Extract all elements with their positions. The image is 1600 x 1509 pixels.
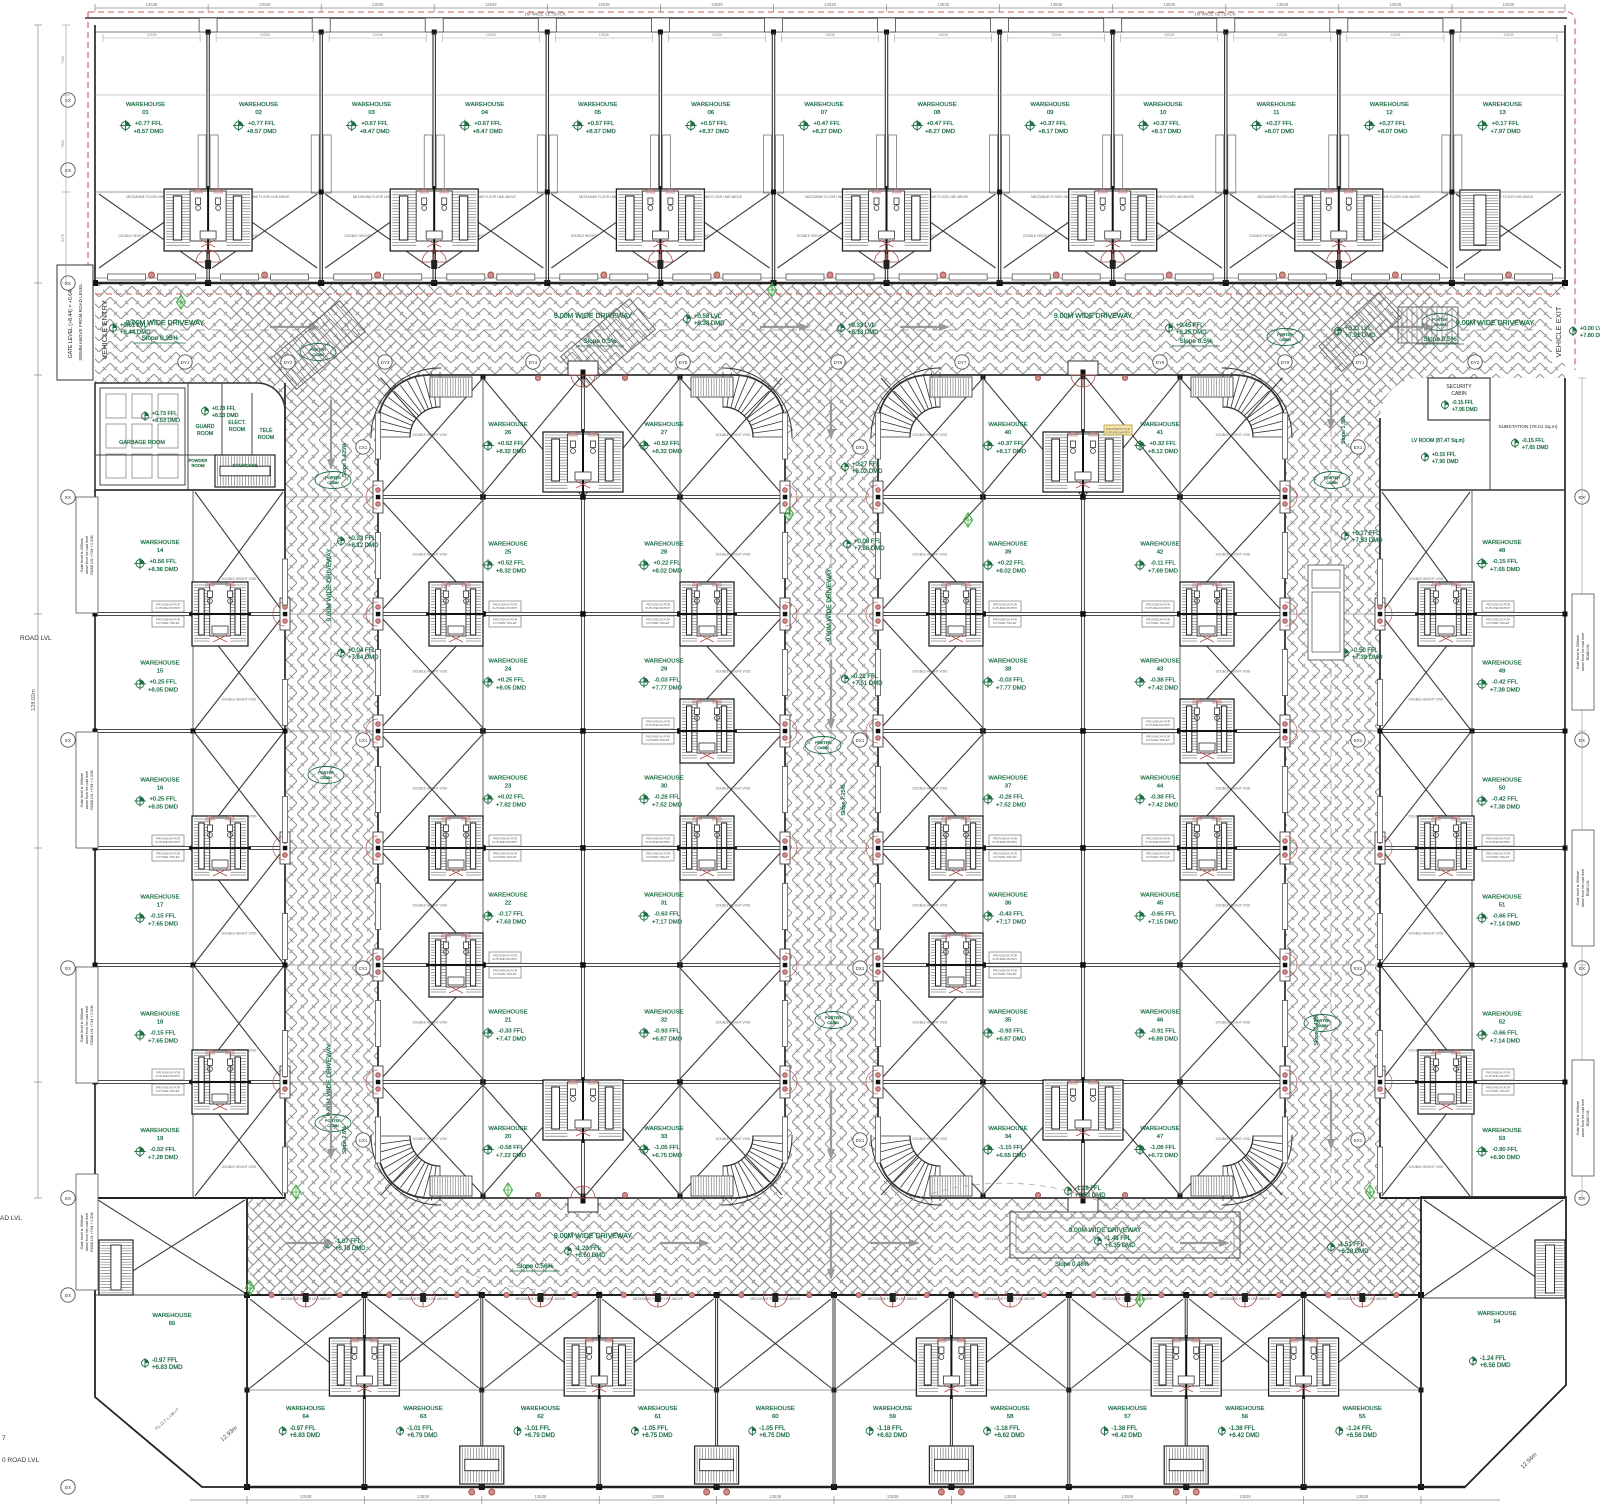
svg-text:-1.18 FFL: -1.18 FFL (877, 1426, 904, 1432)
svg-text:+0.47 FFL: +0.47 FFL (927, 121, 955, 127)
svg-text:WAREHOUSE: WAREHOUSE (1140, 542, 1179, 548)
svg-text:+8.47 DMD: +8.47 DMD (360, 129, 390, 135)
svg-text:+8.05 DMD: +8.05 DMD (148, 805, 178, 811)
svg-text:DY1: DY1 (1356, 360, 1365, 365)
svg-text:FUTURE PANTRY: FUTURE PANTRY (646, 606, 671, 610)
svg-text:31: 31 (661, 901, 668, 907)
svg-text:13538: 13538 (1004, 1494, 1016, 1499)
svg-text:+0.08 FFL: +0.08 FFL (854, 539, 882, 545)
svg-text:DOUBLE HEIGHT: DOUBLE HEIGHT (571, 234, 597, 238)
svg-text:26: 26 (505, 430, 512, 436)
svg-text:19: 19 (157, 1136, 164, 1142)
svg-text:56: 56 (1242, 1414, 1249, 1420)
svg-text:Gate level is 300mm: Gate level is 300mm (80, 773, 84, 808)
svg-text:30: 30 (661, 784, 668, 790)
svg-text:WAREHOUSE: WAREHOUSE (1482, 778, 1521, 784)
svg-text:+0.25 FFL: +0.25 FFL (149, 797, 177, 803)
svg-text:WAREHOUSE: WAREHOUSE (1482, 1012, 1521, 1018)
svg-text:WAREHOUSE: WAREHOUSE (988, 776, 1027, 782)
svg-text:-0.93 FFL: -0.93 FFL (654, 1029, 680, 1035)
svg-text:LV ROOM (87.47 Sq.m): LV ROOM (87.47 Sq.m) (1412, 438, 1465, 444)
svg-text:WAREHOUSE: WAREHOUSE (1140, 1126, 1179, 1132)
svg-text:10538: 10538 (1164, 33, 1174, 37)
svg-text:-0.03 FFL: -0.03 FFL (998, 678, 1024, 684)
svg-text:VEHICLE EXIT: VEHICLE EXIT (1554, 306, 1563, 357)
svg-text:-0.58 FFL: -0.58 FFL (498, 1145, 524, 1151)
svg-text:03: 03 (368, 110, 375, 116)
svg-text:22: 22 (505, 901, 512, 907)
svg-text:39: 39 (1005, 550, 1012, 556)
svg-text:WAREHOUSE: WAREHOUSE (644, 893, 683, 899)
svg-text:ROAD LVL +7.64 + 0.30M: ROAD LVL +7.64 + 0.30M (90, 1212, 94, 1251)
svg-text:DY7: DY7 (958, 360, 967, 365)
svg-text:-0.03 FFL: -0.03 FFL (654, 678, 680, 684)
svg-text:FUTURE TOILET: FUTURE TOILET (646, 621, 670, 625)
svg-text:WAREHOUSE: WAREHOUSE (873, 1406, 912, 1412)
svg-text:+7.82 DMD: +7.82 DMD (496, 803, 526, 809)
svg-text:DY6: DY6 (834, 360, 843, 365)
svg-text:above from the road level: above from the road level (1581, 633, 1585, 672)
svg-text:+7.42 DMD: +7.42 DMD (1148, 686, 1178, 692)
svg-text:DY8: DY8 (1156, 360, 1165, 365)
svg-text:+7.17 DMD: +7.17 DMD (652, 920, 682, 926)
svg-text:46: 46 (1157, 1018, 1164, 1024)
svg-text:TELE: TELE (260, 428, 274, 434)
svg-text:10538: 10538 (599, 33, 609, 37)
svg-text:FUTURE PANTRY: FUTURE PANTRY (1486, 1074, 1511, 1078)
svg-text:10538: 10538 (1051, 33, 1061, 37)
svg-text:FUTURE PANTRY: FUTURE PANTRY (156, 1074, 181, 1078)
svg-text:EX: EX (65, 1196, 71, 1201)
svg-text:59: 59 (889, 1414, 896, 1420)
svg-text:-0.38 FFL: -0.38 FFL (1150, 795, 1176, 801)
svg-text:10538: 10538 (825, 33, 835, 37)
svg-text:13538: 13538 (146, 2, 158, 7)
svg-text:+0.22 FFL: +0.22 FFL (653, 561, 681, 567)
svg-text:+0.27 FFL: +0.27 FFL (852, 462, 880, 468)
svg-text:-0.66 FFL: -0.66 FFL (1492, 1031, 1518, 1037)
svg-text:25: 25 (505, 550, 512, 556)
svg-text:WAREHOUSE: WAREHOUSE (1140, 1010, 1179, 1016)
svg-text:above from the road level: above from the road level (1581, 1099, 1585, 1138)
svg-text:WAREHOUSE: WAREHOUSE (1477, 1311, 1516, 1317)
svg-text:DOUBLE HEIGHT VOID: DOUBLE HEIGHT VOID (716, 787, 751, 791)
svg-text:DOUBLE HEIGHT VOID: DOUBLE HEIGHT VOID (1216, 553, 1251, 557)
svg-text:+8.37 DMD: +8.37 DMD (586, 129, 616, 135)
svg-text:FUTURE TOILET: FUTURE TOILET (1486, 621, 1510, 625)
svg-text:DOUBLE HEIGHT VOID: DOUBLE HEIGHT VOID (1216, 904, 1251, 908)
svg-text:02: 02 (255, 110, 262, 116)
svg-text:DOUBLE HEIGHT VOID: DOUBLE HEIGHT VOID (1409, 932, 1444, 936)
svg-text:+7.65 DMD: +7.65 DMD (1522, 445, 1549, 451)
svg-text:41: 41 (1157, 430, 1164, 436)
svg-text:DOUBLE HEIGHT VOID: DOUBLE HEIGHT VOID (1216, 1137, 1251, 1141)
svg-text:ROOM: ROOM (197, 431, 213, 437)
svg-text:+8.57 DMD: +8.57 DMD (134, 129, 164, 135)
svg-text:DOUBLE HEIGHT VOID: DOUBLE HEIGHT VOID (913, 1021, 948, 1025)
svg-text:WAREHOUSE: WAREHOUSE (644, 776, 683, 782)
svg-text:+7.53 DMD: +7.53 DMD (1352, 538, 1383, 544)
svg-text:DOUBLE HEIGHT VOID: DOUBLE HEIGHT VOID (716, 433, 751, 437)
svg-text:CABIN: CABIN (1451, 391, 1467, 397)
svg-text:+8.13 DMD: +8.13 DMD (848, 330, 879, 336)
svg-text:WAREHOUSE: WAREHOUSE (488, 422, 527, 428)
svg-text:+7.97 DMD: +7.97 DMD (1491, 129, 1521, 135)
svg-text:40: 40 (1005, 430, 1012, 436)
svg-text:Slope 0.5%: Slope 0.5% (1179, 338, 1212, 345)
svg-text:+8.02 DMD: +8.02 DMD (996, 569, 1026, 575)
svg-text:-1.18 FFL: -1.18 FFL (994, 1426, 1021, 1432)
svg-text:+0.02 FFL: +0.02 FFL (497, 795, 525, 801)
svg-text:13538: 13538 (887, 1494, 899, 1499)
svg-text:34: 34 (1005, 1134, 1012, 1140)
svg-text:13538: 13538 (1390, 2, 1402, 7)
svg-text:DOUBLE HEIGHT VOID: DOUBLE HEIGHT VOID (222, 577, 257, 581)
svg-text:45: 45 (1157, 901, 1164, 907)
svg-text:63: 63 (420, 1414, 427, 1420)
svg-text:17: 17 (157, 903, 164, 909)
svg-text:EX: EX (65, 1485, 71, 1490)
svg-text:FUTURE PANTRY: FUTURE PANTRY (1146, 723, 1171, 727)
svg-text:+7.14 DMD: +7.14 DMD (1490, 1039, 1520, 1045)
svg-text:CABIN: CABIN (327, 481, 339, 485)
svg-text:FUTURE TOILET: FUTURE TOILET (156, 1089, 180, 1093)
svg-text:-1.01 FFL: -1.01 FFL (407, 1426, 434, 1432)
svg-text:PORTER: PORTER (325, 1119, 341, 1123)
svg-text:+8.17 DMD: +8.17 DMD (996, 449, 1026, 455)
svg-text:10538: 10538 (147, 33, 157, 37)
svg-text:CABIN: CABIN (1316, 1024, 1328, 1028)
svg-text:29: 29 (661, 667, 668, 673)
svg-text:-0.28 FFL: -0.28 FFL (998, 795, 1024, 801)
svg-text:+8.05 DMD: +8.05 DMD (496, 686, 526, 692)
svg-text:FUTURE PANTRY: FUTURE PANTRY (1486, 606, 1511, 610)
svg-text:11: 11 (1273, 110, 1279, 116)
svg-text:DY2: DY2 (1471, 360, 1480, 365)
svg-text:WAREHOUSE: WAREHOUSE (644, 1126, 683, 1132)
svg-text:SECURITY: SECURITY (1446, 384, 1472, 390)
svg-text:+6.65 DMD: +6.65 DMD (996, 1153, 1026, 1159)
svg-text:128.02m: 128.02m (31, 689, 37, 711)
svg-text:FUTURE TOILET: FUTURE TOILET (993, 972, 1017, 976)
svg-text:+0.37 FFL: +0.37 FFL (997, 441, 1025, 447)
svg-text:+7.69 DMD: +7.69 DMD (1148, 569, 1178, 575)
svg-text:FUTURE PANTRY: FUTURE PANTRY (993, 840, 1018, 844)
svg-text:WAREHOUSE: WAREHOUSE (1482, 1128, 1521, 1134)
svg-text:-0.38 FFL: -0.38 FFL (1150, 678, 1176, 684)
svg-text:DOUBLE HEIGHT: DOUBLE HEIGHT (118, 234, 144, 238)
svg-text:+7.95 DMD: +7.95 DMD (1452, 407, 1478, 413)
svg-text:EX1: EX1 (1354, 1138, 1363, 1143)
svg-text:DOUBLE HEIGHT VOID: DOUBLE HEIGHT VOID (913, 433, 948, 437)
svg-text:13538: 13538 (1163, 2, 1175, 7)
svg-text:EX: EX (65, 966, 71, 971)
svg-text:EX1: EX1 (1354, 966, 1363, 971)
svg-text:GUARD: GUARD (196, 424, 215, 430)
svg-text:+6.89 DMD: +6.89 DMD (1148, 1037, 1178, 1043)
svg-text:WAREHOUSE: WAREHOUSE (988, 422, 1027, 428)
svg-text:WAREHOUSE: WAREHOUSE (1140, 422, 1179, 428)
svg-text:WAREHOUSE: WAREHOUSE (488, 893, 527, 899)
svg-text:49: 49 (1499, 669, 1506, 675)
svg-text:WAREHOUSE: WAREHOUSE (578, 102, 617, 108)
svg-text:+8.47 DMD: +8.47 DMD (473, 129, 503, 135)
svg-text:+8.25 DMD: +8.25 DMD (1176, 330, 1207, 336)
svg-text:+7.17 DMD: +7.17 DMD (996, 920, 1026, 926)
svg-text:CABIN: CABIN (327, 1124, 339, 1128)
svg-text:13538: 13538 (652, 1494, 664, 1499)
svg-text:0 ROAD LVL: 0 ROAD LVL (2, 1457, 39, 1464)
svg-text:+0.04 FFL: +0.04 FFL (348, 648, 376, 654)
svg-text:-0.90 FFL: -0.90 FFL (1492, 1147, 1518, 1153)
svg-text:+6.90 DMD: +6.90 DMD (1490, 1155, 1520, 1161)
svg-text:+0.25 FFL: +0.25 FFL (497, 678, 525, 684)
svg-text:+8.53 DMD: +8.53 DMD (152, 418, 180, 424)
svg-text:DOUBLE HEIGHT VOID: DOUBLE HEIGHT VOID (1216, 433, 1251, 437)
svg-text:DOUBLE HEIGHT VOID: DOUBLE HEIGHT VOID (716, 904, 751, 908)
svg-text:32: 32 (661, 1018, 668, 1024)
svg-text:DOUBLE HEIGHT VOID: DOUBLE HEIGHT VOID (413, 1137, 448, 1141)
svg-text:60: 60 (772, 1414, 779, 1420)
svg-text:20: 20 (505, 1134, 512, 1140)
svg-text:57: 57 (1124, 1414, 1131, 1420)
svg-text:10538: 10538 (486, 33, 496, 37)
svg-text:FUTURE PANTRY: FUTURE PANTRY (156, 840, 181, 844)
svg-text:+7.65 DMD: +7.65 DMD (1490, 567, 1520, 573)
svg-text:DOUBLE HEIGHT: DOUBLE HEIGHT (1023, 234, 1049, 238)
svg-text:+8.32 DMD: +8.32 DMD (496, 449, 526, 455)
svg-text:13538: 13538 (711, 2, 723, 7)
svg-text:-1.51 FFL: -1.51 FFL (1338, 1242, 1365, 1248)
svg-text:WAREHOUSE: WAREHOUSE (644, 422, 683, 428)
svg-text:-0.15 FFL: -0.15 FFL (150, 1031, 176, 1037)
svg-text:WAREHOUSE: WAREHOUSE (1343, 1406, 1382, 1412)
svg-text:WAREHOUSE: WAREHOUSE (691, 102, 730, 108)
svg-text:ROAD LVL +7.64 + 0.30M: ROAD LVL +7.64 + 0.30M (90, 1005, 94, 1044)
svg-text:23: 23 (505, 784, 512, 790)
svg-text:+6.87 DMD: +6.87 DMD (996, 1037, 1026, 1043)
svg-text:+7.63 DMD: +7.63 DMD (496, 920, 526, 926)
svg-text:36: 36 (1005, 901, 1012, 907)
svg-text:WAREHOUSE: WAREHOUSE (286, 1406, 325, 1412)
svg-text:DX1: DX1 (856, 1138, 865, 1143)
svg-text:above from the road level: above from the road level (85, 1213, 89, 1252)
svg-text:DOUBLE HEIGHT VOID: DOUBLE HEIGHT VOID (413, 433, 448, 437)
svg-text:WAREHOUSE: WAREHOUSE (488, 776, 527, 782)
svg-text:-0.93 FFL: -0.93 FFL (998, 1029, 1024, 1035)
svg-text:EX: EX (65, 1293, 71, 1298)
svg-text:+0.67 FFL: +0.67 FFL (361, 121, 389, 127)
svg-text:CABIN: CABIN (1434, 323, 1446, 327)
svg-text:10538: 10538 (373, 33, 383, 37)
svg-text:-0.15 FFL: -0.15 FFL (1452, 400, 1474, 406)
svg-text:+7.42 DMD: +7.42 DMD (1148, 803, 1178, 809)
svg-text:+0.33 LVL: +0.33 LVL (848, 323, 876, 329)
svg-text:PORTER: PORTER (1432, 318, 1448, 322)
svg-text:-0.21 FFL: -0.21 FFL (852, 674, 879, 680)
svg-text:35: 35 (1005, 1018, 1012, 1024)
svg-text:FUTURE TOILET: FUTURE TOILET (993, 855, 1017, 859)
svg-text:33: 33 (661, 1134, 668, 1140)
svg-text:+7.77 DMD: +7.77 DMD (652, 686, 682, 692)
svg-text:Gate level is 300mm: Gate level is 300mm (1576, 871, 1580, 906)
svg-text:+7.80 DMD: +7.80 DMD (1580, 333, 1600, 339)
svg-text:-0.28 FFL: -0.28 FFL (654, 795, 680, 801)
svg-text:-1.05 FFL: -1.05 FFL (654, 1145, 680, 1151)
svg-text:+7.65 DMD: +7.65 DMD (148, 922, 178, 928)
svg-text:10538: 10538 (260, 33, 270, 37)
svg-text:+6.73 DMD: +6.73 DMD (335, 1246, 366, 1252)
svg-text:WAREHOUSE: WAREHOUSE (988, 659, 1027, 665)
svg-text:FUTURE PANTRY: FUTURE PANTRY (646, 723, 671, 727)
svg-text:DY4: DY4 (529, 360, 538, 365)
svg-text:+8.44 DMD: +8.44 DMD (120, 330, 151, 336)
svg-text:WAREHOUSE: WAREHOUSE (140, 1012, 179, 1018)
svg-text:DY5: DY5 (679, 360, 688, 365)
svg-text:13538: 13538 (598, 2, 610, 7)
svg-text:+8.12 DMD: +8.12 DMD (1148, 449, 1178, 455)
svg-text:Slope 0.56%: Slope 0.56% (517, 1263, 554, 1270)
svg-text:DOUBLE HEIGHT VOID: DOUBLE HEIGHT VOID (413, 787, 448, 791)
svg-text:+0.56 FFL: +0.56 FFL (149, 559, 177, 565)
svg-text:37: 37 (1005, 784, 1012, 790)
svg-text:+0.22 FFL: +0.22 FFL (997, 561, 1025, 567)
svg-text:DOUBLE HEIGHT VOID: DOUBLE HEIGHT VOID (1409, 698, 1444, 702)
svg-text:+0.25 FFL: +0.25 FFL (149, 680, 177, 686)
svg-text:+6.83 DMD: +6.83 DMD (152, 1365, 183, 1371)
svg-text:+6.79 DMD: +6.79 DMD (525, 1433, 556, 1439)
svg-text:WAREHOUSE: WAREHOUSE (917, 102, 956, 108)
svg-text:WAREHOUSE: WAREHOUSE (1257, 102, 1296, 108)
svg-text:9.00M WIDE DRIVEWAY: 9.00M WIDE DRIVEWAY (554, 1233, 633, 1240)
svg-text:+6.42 DMD: +6.42 DMD (1112, 1433, 1143, 1439)
svg-text:FUTURE TOILET: FUTURE TOILET (646, 738, 670, 742)
svg-text:WAREHOUSE: WAREHOUSE (1140, 893, 1179, 899)
svg-text:-0.65 FFL: -0.65 FFL (1150, 912, 1176, 918)
svg-text:-1.05 FFL: -1.05 FFL (759, 1426, 786, 1432)
svg-text:-0.63 FFL: -0.63 FFL (654, 912, 680, 918)
svg-text:-0.17 FFL: -0.17 FFL (498, 912, 524, 918)
svg-text:+8.05 DMD: +8.05 DMD (148, 688, 178, 694)
svg-text:14: 14 (157, 548, 164, 554)
svg-text:10538: 10538 (1504, 33, 1514, 37)
svg-text:WAREHOUSE: WAREHOUSE (488, 1126, 527, 1132)
svg-text:+6.75 DMD: +6.75 DMD (642, 1433, 673, 1439)
svg-text:-1.01 FFL: -1.01 FFL (525, 1426, 552, 1432)
svg-text:WAREHOUSE: WAREHOUSE (988, 893, 1027, 899)
svg-text:-0.11 FFL: -0.11 FFL (1150, 561, 1176, 567)
svg-text:FUTURE TOILET: FUTURE TOILET (493, 972, 517, 976)
svg-text:SUBSTATION (78.01 Sq.m): SUBSTATION (78.01 Sq.m) (1499, 424, 1558, 430)
svg-text:FUTURE TOILET: FUTURE TOILET (156, 621, 180, 625)
svg-text:+7.65 DMD: +7.65 DMD (148, 1039, 178, 1045)
svg-text:+7.77 DMD: +7.77 DMD (996, 686, 1026, 692)
svg-text:PORTER: PORTER (1324, 476, 1340, 480)
svg-text:DOUBLE HEIGHT VOID: DOUBLE HEIGHT VOID (716, 1021, 751, 1025)
svg-text:CX1: CX1 (359, 738, 368, 743)
svg-text:ROAD LVL: ROAD LVL (1586, 644, 1590, 661)
svg-text:DOUBLE HEIGHT VOID: DOUBLE HEIGHT VOID (716, 670, 751, 674)
svg-text:+0.57 FFL: +0.57 FFL (700, 121, 728, 127)
svg-text:WAREHOUSE: WAREHOUSE (140, 661, 179, 667)
svg-text:FUTURE TOILET: FUTURE TOILET (1486, 1089, 1510, 1093)
svg-text:WAREHOUSE: WAREHOUSE (488, 659, 527, 665)
svg-text:1M WIDE SETBACK: 1M WIDE SETBACK (524, 12, 566, 17)
svg-text:WAREHOUSE: WAREHOUSE (756, 1406, 795, 1412)
svg-text:+7.38 DMD: +7.38 DMD (1490, 688, 1520, 694)
svg-text:DOUBLE HEIGHT VOID: DOUBLE HEIGHT VOID (1409, 577, 1444, 581)
svg-text:WAREHOUSE: WAREHOUSE (1483, 102, 1522, 108)
svg-text:+0.58 LVL: +0.58 LVL (694, 314, 722, 320)
svg-text:DOUBLE HEIGHT VOID: DOUBLE HEIGHT VOID (1409, 1165, 1444, 1169)
svg-text:+0.27 FFL: +0.27 FFL (1379, 121, 1407, 127)
svg-text:28: 28 (661, 550, 668, 556)
svg-text:-0.97 FFL: -0.97 FFL (152, 1358, 179, 1364)
svg-text:+7.52 DMD: +7.52 DMD (996, 803, 1026, 809)
svg-text:WAREHOUSE: WAREHOUSE (403, 1406, 442, 1412)
svg-text:FUTURE TOILET: FUTURE TOILET (1486, 855, 1510, 859)
svg-text:+7.88 DMD: +7.88 DMD (854, 546, 885, 552)
svg-text:+6.56 DMD: +6.56 DMD (1480, 1363, 1511, 1369)
svg-text:FUTURE PANTRY: FUTURE PANTRY (993, 957, 1018, 961)
svg-text:WAREHOUSE: WAREHOUSE (1031, 102, 1070, 108)
svg-text:-1.45 FFL: -1.45 FFL (1105, 1236, 1132, 1242)
svg-text:-0.50 FFL: -0.50 FFL (1352, 648, 1379, 654)
svg-text:13538: 13538 (259, 2, 271, 7)
svg-text:CABIN: CABIN (1326, 481, 1338, 485)
svg-text:-0.15 FFL: -0.15 FFL (150, 914, 176, 920)
svg-text:+0.61 LVL: +0.61 LVL (120, 323, 148, 329)
svg-text:06: 06 (708, 110, 715, 116)
svg-text:PORTER: PORTER (815, 741, 831, 745)
svg-text:DOUBLE HEIGHT VOID: DOUBLE HEIGHT VOID (413, 670, 448, 674)
svg-text:27: 27 (661, 430, 668, 436)
svg-text:PORTER: PORTER (1277, 333, 1293, 337)
svg-text:61: 61 (655, 1414, 662, 1420)
svg-text:DOUBLE HEIGHT VOID: DOUBLE HEIGHT VOID (913, 553, 948, 557)
svg-text:13: 13 (1499, 110, 1506, 116)
svg-text:CX1: CX1 (359, 1138, 368, 1143)
svg-text:CX1: CX1 (359, 966, 368, 971)
svg-text:+6.79 DMD: +6.79 DMD (407, 1433, 438, 1439)
svg-text:13538: 13538 (937, 2, 949, 7)
svg-text:PORTER: PORTER (325, 476, 341, 480)
svg-text:above from the road level: above from the road level (85, 771, 89, 810)
svg-text:FUTURE PANTRY: FUTURE PANTRY (1486, 840, 1511, 844)
svg-text:DOUBLE HEIGHT VOID: DOUBLE HEIGHT VOID (913, 670, 948, 674)
svg-text:EX: EX (65, 738, 71, 743)
svg-text:10538: 10538 (938, 33, 948, 37)
svg-text:WAREHOUSE: WAREHOUSE (1482, 661, 1521, 667)
svg-text:7: 7 (2, 1435, 6, 1442)
svg-text:Gate level is 300mm: Gate level is 300mm (80, 1008, 84, 1043)
svg-text:+8.17 DMD: +8.17 DMD (1038, 129, 1068, 135)
svg-text:EX: EX (65, 495, 71, 500)
svg-text:+0.32 FFL: +0.32 FFL (1149, 441, 1177, 447)
svg-text:-0.91 FFL: -0.91 FFL (1150, 1029, 1176, 1035)
svg-text:WAREHOUSE: WAREHOUSE (644, 1010, 683, 1016)
svg-text:55: 55 (1359, 1414, 1366, 1420)
svg-text:+8.37 DMD: +8.37 DMD (699, 129, 729, 135)
svg-text:64: 64 (302, 1414, 309, 1420)
svg-text:WAREHOUSE: WAREHOUSE (1482, 895, 1521, 901)
svg-text:+8.02 DMD: +8.02 DMD (852, 469, 883, 475)
svg-text:FUTURE PANTRY: FUTURE PANTRY (156, 606, 181, 610)
svg-text:DY2: DY2 (284, 360, 293, 365)
svg-text:+7.47 DMD: +7.47 DMD (496, 1037, 526, 1043)
svg-text:WAREHOUSE: WAREHOUSE (988, 542, 1027, 548)
svg-text:+8.02 DMD: +8.02 DMD (652, 569, 682, 575)
